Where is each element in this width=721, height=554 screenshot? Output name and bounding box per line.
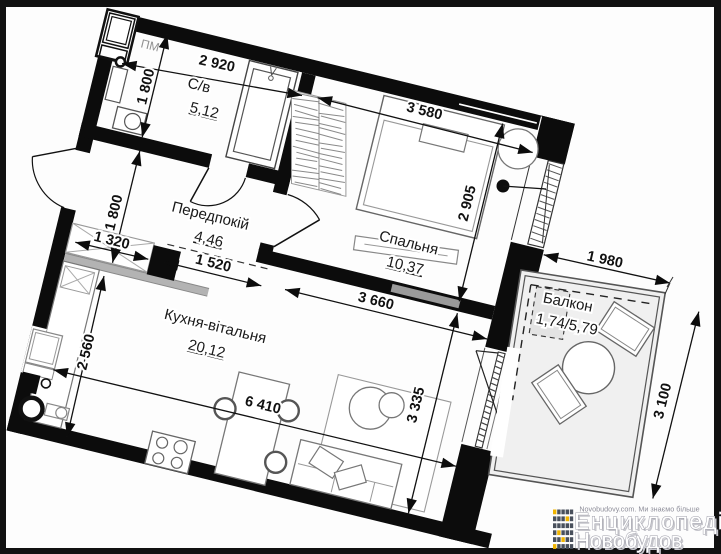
svg-text:Новобудов: Новобудов — [574, 528, 682, 553]
